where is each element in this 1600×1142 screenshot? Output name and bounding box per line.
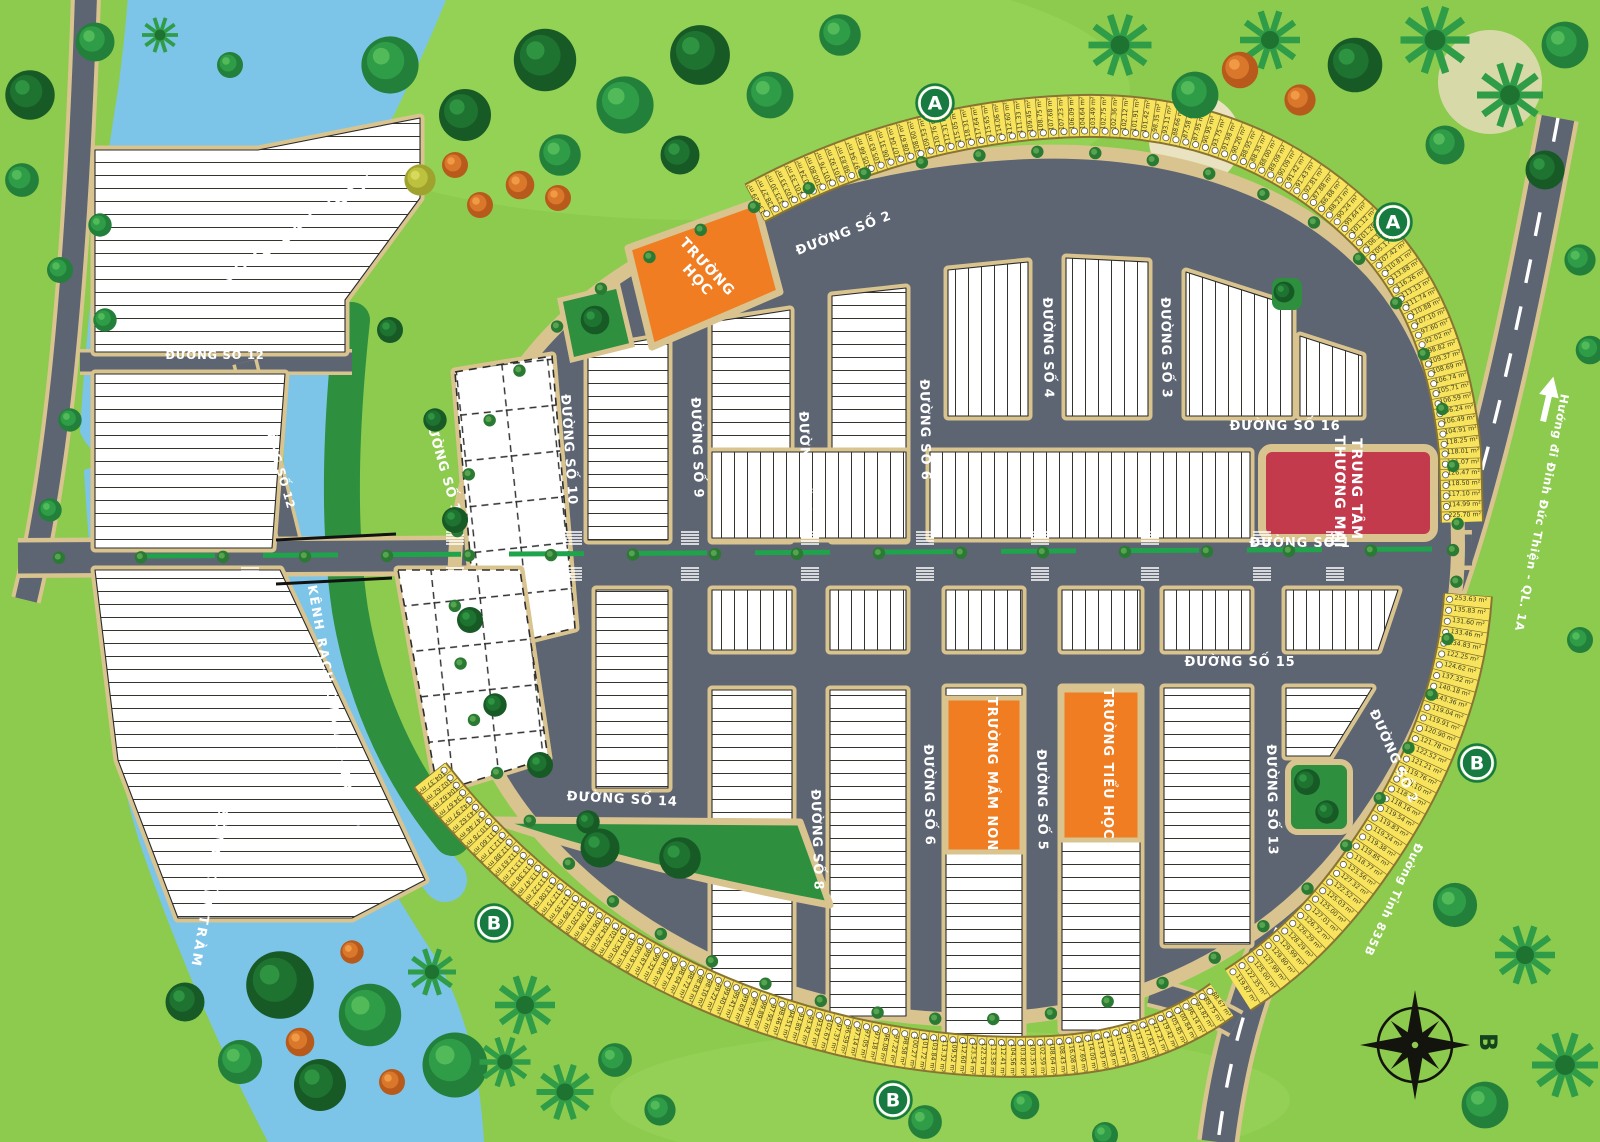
bush-icon bbox=[1209, 952, 1221, 964]
bush-icon bbox=[463, 549, 475, 561]
tree-icon bbox=[246, 951, 314, 1019]
lot-number-badge bbox=[1334, 870, 1340, 876]
bush-icon bbox=[791, 548, 803, 560]
lot-number-badge bbox=[1416, 725, 1422, 731]
lot-number-badge bbox=[1439, 651, 1445, 657]
lot-number-badge bbox=[1420, 715, 1426, 721]
block-lots bbox=[948, 262, 1028, 416]
marker-a: A bbox=[917, 85, 954, 122]
bush-icon bbox=[1147, 154, 1159, 166]
block-lots bbox=[830, 690, 906, 1016]
bush-icon bbox=[1308, 216, 1320, 228]
lot-area-label: 104.64 m² bbox=[1079, 96, 1086, 129]
lot-number-badge bbox=[1372, 815, 1378, 821]
bush-icon bbox=[53, 552, 65, 564]
bush-icon bbox=[973, 149, 985, 161]
tree-icon bbox=[598, 1043, 632, 1077]
marker-b: B bbox=[875, 1082, 912, 1119]
bush-icon bbox=[135, 551, 147, 563]
tree-icon bbox=[1542, 22, 1589, 69]
bush-icon bbox=[655, 928, 667, 940]
lot-number-badge bbox=[1230, 969, 1236, 975]
lot-number-badge bbox=[1447, 596, 1453, 602]
tree-icon bbox=[659, 837, 701, 879]
tree-icon bbox=[218, 1040, 262, 1084]
lot-number-badge bbox=[1239, 963, 1245, 969]
lot-number-badge bbox=[1257, 949, 1263, 955]
lot-area-label: 106.09 m² bbox=[1068, 96, 1076, 129]
tree-icon bbox=[819, 14, 861, 56]
lot-area-label: 102.75 m² bbox=[1100, 96, 1108, 129]
lot-number-badge bbox=[1436, 662, 1442, 668]
block-lots bbox=[1164, 590, 1250, 650]
bush-icon bbox=[1418, 348, 1430, 360]
lot-number-badge bbox=[1297, 912, 1303, 918]
lot-number-badge bbox=[1388, 786, 1394, 792]
tree-icon bbox=[514, 29, 576, 91]
block-lots bbox=[830, 590, 906, 650]
bush-icon bbox=[1201, 545, 1213, 557]
tree-icon bbox=[1315, 800, 1338, 823]
tree-icon bbox=[361, 36, 418, 93]
bush-icon bbox=[563, 857, 575, 869]
lot-number-badge bbox=[1273, 935, 1279, 941]
lot-area-label: 104.56 m² bbox=[1009, 1043, 1016, 1076]
bush-icon bbox=[491, 767, 503, 779]
tree-icon bbox=[217, 52, 243, 78]
lot-number-badge bbox=[1153, 133, 1159, 139]
lot-number-badge bbox=[1424, 704, 1430, 710]
bush-icon bbox=[217, 551, 229, 563]
lot-area-label: 225.70 m² bbox=[1448, 511, 1481, 519]
tree-icon bbox=[5, 70, 54, 119]
tree-icon bbox=[1274, 282, 1295, 303]
bush-icon bbox=[1257, 188, 1269, 200]
bush-icon bbox=[1451, 518, 1463, 530]
park-square bbox=[1288, 762, 1350, 832]
lot-number-badge bbox=[1377, 805, 1383, 811]
lot-number-badge bbox=[1340, 861, 1346, 867]
tree-icon bbox=[457, 607, 483, 633]
bush-icon bbox=[871, 1006, 883, 1018]
lot-number-badge bbox=[1412, 736, 1418, 742]
label-d16: ĐƯỜNG SỐ 16 bbox=[1229, 416, 1340, 434]
lot-number-badge bbox=[1183, 139, 1189, 145]
lot-number-badge bbox=[1248, 956, 1254, 962]
bush-icon bbox=[1101, 995, 1113, 1007]
lot-number-badge bbox=[1360, 834, 1366, 840]
tree-icon bbox=[38, 498, 61, 521]
tree-icon bbox=[908, 1105, 942, 1139]
label-d12-h: ĐƯỜNG SỐ 12 bbox=[165, 345, 264, 362]
tree-icon bbox=[442, 152, 468, 178]
tree-icon bbox=[661, 136, 700, 175]
bush-icon bbox=[1436, 403, 1448, 415]
bush-icon bbox=[513, 364, 525, 376]
block-lots bbox=[930, 452, 1250, 538]
lot-number-badge bbox=[1434, 672, 1440, 678]
bush-icon bbox=[955, 547, 967, 559]
tree-icon bbox=[581, 829, 620, 868]
lot-number-badge bbox=[1327, 879, 1333, 885]
label-primary-school: TRƯỜNG TIỂU HỌC bbox=[1100, 688, 1118, 839]
bush-icon bbox=[1390, 297, 1402, 309]
bush-icon bbox=[1301, 882, 1313, 894]
bush-icon bbox=[524, 815, 536, 827]
bush-icon bbox=[1257, 920, 1269, 932]
tree-icon bbox=[596, 76, 653, 133]
marker-letter: A bbox=[1386, 212, 1401, 234]
bush-icon bbox=[815, 995, 827, 1007]
compass-section-letter: B bbox=[1474, 1033, 1502, 1051]
master-plan-map: 134.29 m²128.27 m²123.30 m²102.33 m²101.… bbox=[0, 0, 1600, 1142]
lot-area-label: 117.10 m² bbox=[1448, 490, 1481, 498]
lot-number-badge bbox=[1444, 618, 1450, 624]
bush-icon bbox=[595, 282, 607, 294]
bush-icon bbox=[695, 224, 707, 236]
bush-icon bbox=[1156, 977, 1168, 989]
bush-icon bbox=[643, 251, 655, 263]
marker-letter: A bbox=[928, 93, 943, 115]
lot-area-label: 103.49 m² bbox=[1090, 96, 1097, 129]
bush-icon bbox=[748, 201, 760, 213]
lot-area-label: 103.35 m² bbox=[1028, 1043, 1036, 1076]
tree-icon bbox=[442, 507, 468, 533]
block-lots bbox=[712, 590, 792, 650]
lot-number-badge bbox=[1312, 896, 1318, 902]
lot-number-badge bbox=[1173, 137, 1179, 143]
tree-icon bbox=[404, 164, 435, 195]
lot-number-badge bbox=[1290, 920, 1296, 926]
label-d15: ĐƯỜNG SỐ 15 bbox=[1184, 652, 1295, 670]
label-commercial-line1: TRUNG TÂM bbox=[1348, 438, 1365, 540]
tree-icon bbox=[545, 185, 571, 211]
tree-icon bbox=[339, 984, 401, 1046]
tree-icon bbox=[166, 983, 205, 1022]
bush-icon bbox=[1402, 742, 1414, 754]
lot-number-badge bbox=[1446, 607, 1452, 613]
tree-icon bbox=[423, 1033, 488, 1098]
bush-icon bbox=[449, 600, 461, 612]
tree-icon bbox=[483, 693, 506, 716]
bush-icon bbox=[1037, 546, 1049, 558]
bush-icon bbox=[607, 895, 619, 907]
bush-icon bbox=[706, 955, 718, 967]
bush-icon bbox=[1089, 147, 1101, 159]
lot-area-label: 103.82 m² bbox=[1019, 1043, 1026, 1076]
tree-icon bbox=[581, 306, 610, 335]
bush-icon bbox=[1203, 167, 1215, 179]
bush-icon bbox=[1441, 633, 1453, 645]
tree-icon bbox=[644, 1094, 675, 1125]
block-lots bbox=[588, 336, 668, 540]
bush-icon bbox=[1045, 1007, 1057, 1019]
tree-icon bbox=[88, 213, 111, 236]
lot-number-badge bbox=[1193, 141, 1199, 147]
tree-icon bbox=[1564, 244, 1595, 275]
marker-b: B bbox=[476, 905, 513, 942]
bush-icon bbox=[1031, 146, 1043, 158]
bush-icon bbox=[627, 548, 639, 560]
tree-icon bbox=[93, 308, 116, 331]
tree-icon bbox=[1426, 126, 1465, 165]
marker-letter: B bbox=[1470, 753, 1484, 775]
marker-letter: B bbox=[487, 913, 501, 935]
block-lots bbox=[1066, 258, 1148, 416]
bush-icon bbox=[859, 167, 871, 179]
lot-number-badge bbox=[1282, 928, 1288, 934]
tree-icon bbox=[1567, 627, 1593, 653]
tree-icon bbox=[379, 1069, 405, 1095]
lot-area-label: 114.99 m² bbox=[1448, 501, 1481, 509]
bush-icon bbox=[1353, 253, 1365, 265]
tree-icon bbox=[1172, 72, 1219, 119]
tree-icon bbox=[377, 317, 403, 343]
bush-icon bbox=[381, 550, 393, 562]
bush-icon bbox=[759, 978, 771, 990]
tree-icon bbox=[5, 163, 39, 197]
bush-icon bbox=[454, 657, 466, 669]
tree-icon bbox=[747, 72, 794, 119]
marker-a: A bbox=[1375, 204, 1412, 241]
tree-icon bbox=[1328, 38, 1383, 93]
tree-icon bbox=[1526, 151, 1565, 190]
tree-icon bbox=[539, 134, 581, 176]
tree-icon bbox=[527, 752, 553, 778]
bush-icon bbox=[1374, 792, 1386, 804]
lot-number-badge bbox=[1353, 843, 1359, 849]
bush-icon bbox=[1447, 544, 1459, 556]
bush-icon bbox=[709, 548, 721, 560]
tree-icon bbox=[1284, 84, 1315, 115]
bush-icon bbox=[987, 1013, 999, 1025]
lot-number-badge bbox=[1366, 824, 1372, 830]
lot-number-badge bbox=[1320, 888, 1326, 894]
block-lots bbox=[946, 590, 1022, 650]
bush-icon bbox=[483, 414, 495, 426]
tree-icon bbox=[294, 1059, 346, 1111]
tree-icon bbox=[1222, 52, 1258, 88]
tree-icon bbox=[1462, 1082, 1509, 1129]
tree-icon bbox=[1294, 769, 1320, 795]
label-kindergarten: TRƯỜNG MẦM NON bbox=[984, 697, 1002, 851]
tree-icon bbox=[1011, 1091, 1040, 1120]
tree-icon bbox=[506, 171, 535, 200]
bush-icon bbox=[299, 550, 311, 562]
bush-icon bbox=[468, 714, 480, 726]
block-lots bbox=[1286, 590, 1398, 650]
bush-icon bbox=[873, 547, 885, 559]
tree-icon bbox=[670, 25, 730, 85]
bush-icon bbox=[1365, 544, 1377, 556]
lot-number-badge bbox=[1163, 135, 1169, 141]
tree-icon bbox=[439, 89, 491, 141]
zone-kindergarten bbox=[946, 698, 1022, 852]
lot-number-badge bbox=[1305, 904, 1311, 910]
bush-icon bbox=[1340, 839, 1352, 851]
lot-area-label: 112.41 m² bbox=[999, 1043, 1007, 1076]
tree-icon bbox=[47, 257, 73, 283]
zone-commercial-center bbox=[1262, 448, 1434, 538]
tree-icon bbox=[467, 192, 493, 218]
bush-icon bbox=[463, 468, 475, 480]
bush-icon bbox=[1447, 460, 1459, 472]
marker-b: B bbox=[1459, 745, 1496, 782]
tree-icon bbox=[423, 408, 446, 431]
marker-letter: B bbox=[886, 1090, 900, 1112]
tree-icon bbox=[340, 940, 363, 963]
label-commercial-line2: THƯƠNG MẠI bbox=[1331, 435, 1347, 548]
lot-number-badge bbox=[1347, 852, 1353, 858]
bush-icon bbox=[929, 1012, 941, 1024]
tree-icon bbox=[1433, 883, 1477, 927]
bush-icon bbox=[803, 182, 815, 194]
tree-icon bbox=[286, 1028, 315, 1057]
bush-icon bbox=[1283, 545, 1295, 557]
block-lots bbox=[596, 590, 668, 788]
block-lots bbox=[95, 374, 285, 548]
lot-area-label: 118.50 m² bbox=[1447, 479, 1480, 487]
lot-number-badge bbox=[1265, 943, 1271, 949]
bush-icon bbox=[1425, 688, 1437, 700]
tree-icon bbox=[58, 408, 81, 431]
tree-icon bbox=[76, 23, 115, 62]
bush-icon bbox=[551, 320, 563, 332]
block-lots bbox=[1062, 590, 1140, 650]
block-lots bbox=[1164, 688, 1250, 944]
bush-icon bbox=[916, 156, 928, 168]
bush-icon bbox=[1450, 575, 1462, 587]
bush-icon bbox=[545, 549, 557, 561]
bush-icon bbox=[1119, 546, 1131, 558]
